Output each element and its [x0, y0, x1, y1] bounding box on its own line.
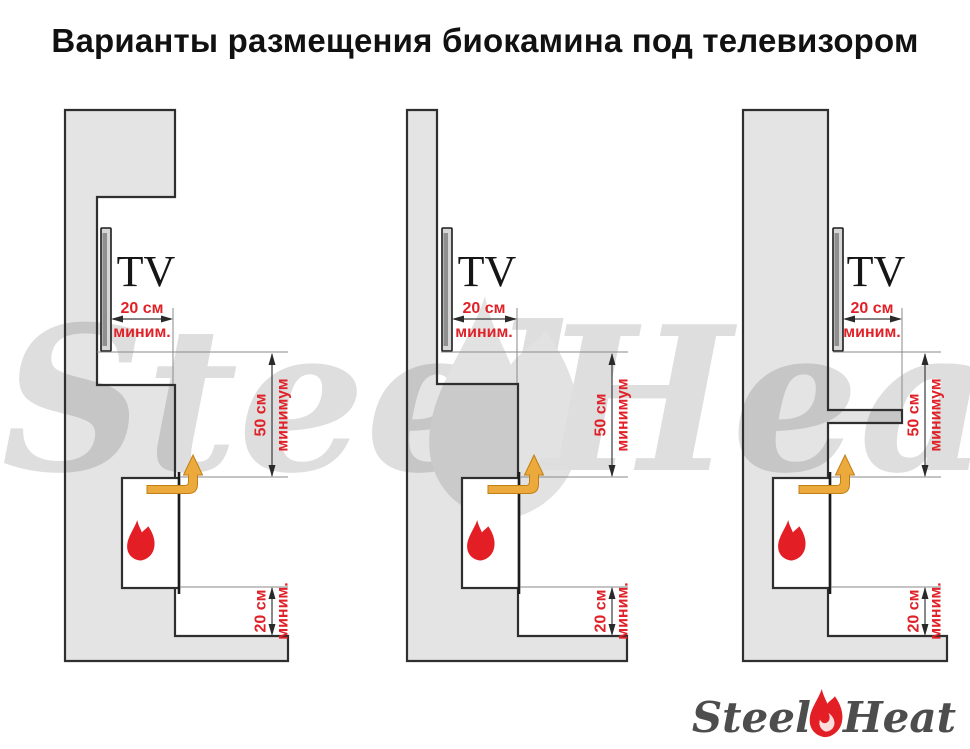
- tv-icon: [101, 228, 111, 351]
- tv-icon: [833, 228, 843, 351]
- dimension-value: 50 см: [906, 394, 923, 437]
- dimension-value: 20 см: [851, 300, 894, 317]
- dimension-below-fireplace-20cm: 20 см миним.: [593, 582, 632, 639]
- dimension-value: 50 см: [593, 394, 610, 437]
- dimension-qualifier: минимум: [928, 378, 945, 451]
- tv-label: TV: [458, 247, 517, 296]
- dimension-value: 50 см: [253, 394, 270, 437]
- dimension-qualifier: минимум: [275, 378, 292, 451]
- tv-label: TV: [847, 247, 906, 296]
- tv-label: TV: [117, 247, 176, 296]
- dimension-qualifier: минимум: [615, 378, 632, 451]
- dimension-qualifier: миним.: [843, 324, 900, 341]
- dimension-below-fireplace-20cm: 20 см миним.: [906, 582, 945, 639]
- dimension-qualifier: миним.: [615, 582, 632, 639]
- dimension-value: 20 см: [593, 590, 610, 633]
- logo-steel-text: Steel: [692, 695, 811, 741]
- diagram-canvas: Steel Heat 20 см миним.: [0, 0, 970, 749]
- dimension-qualifier: миним.: [928, 582, 945, 639]
- logo-heat-text: Heat: [843, 695, 956, 741]
- dimension-qualifier: миним.: [275, 582, 292, 639]
- brand-logo: Steel Heat: [692, 687, 956, 741]
- dimension-qualifier: миним.: [113, 324, 170, 341]
- logo-flame-icon: [806, 687, 846, 739]
- dimension-value: 20 см: [906, 590, 923, 633]
- dimension-value: 20 см: [121, 300, 164, 317]
- tv-icon: [442, 228, 452, 351]
- dimension-value: 20 см: [253, 590, 270, 633]
- dimension-below-fireplace-20cm: 20 см миним.: [253, 582, 292, 639]
- dimension-qualifier: миним.: [455, 324, 512, 341]
- dimension-value: 20 см: [463, 300, 506, 317]
